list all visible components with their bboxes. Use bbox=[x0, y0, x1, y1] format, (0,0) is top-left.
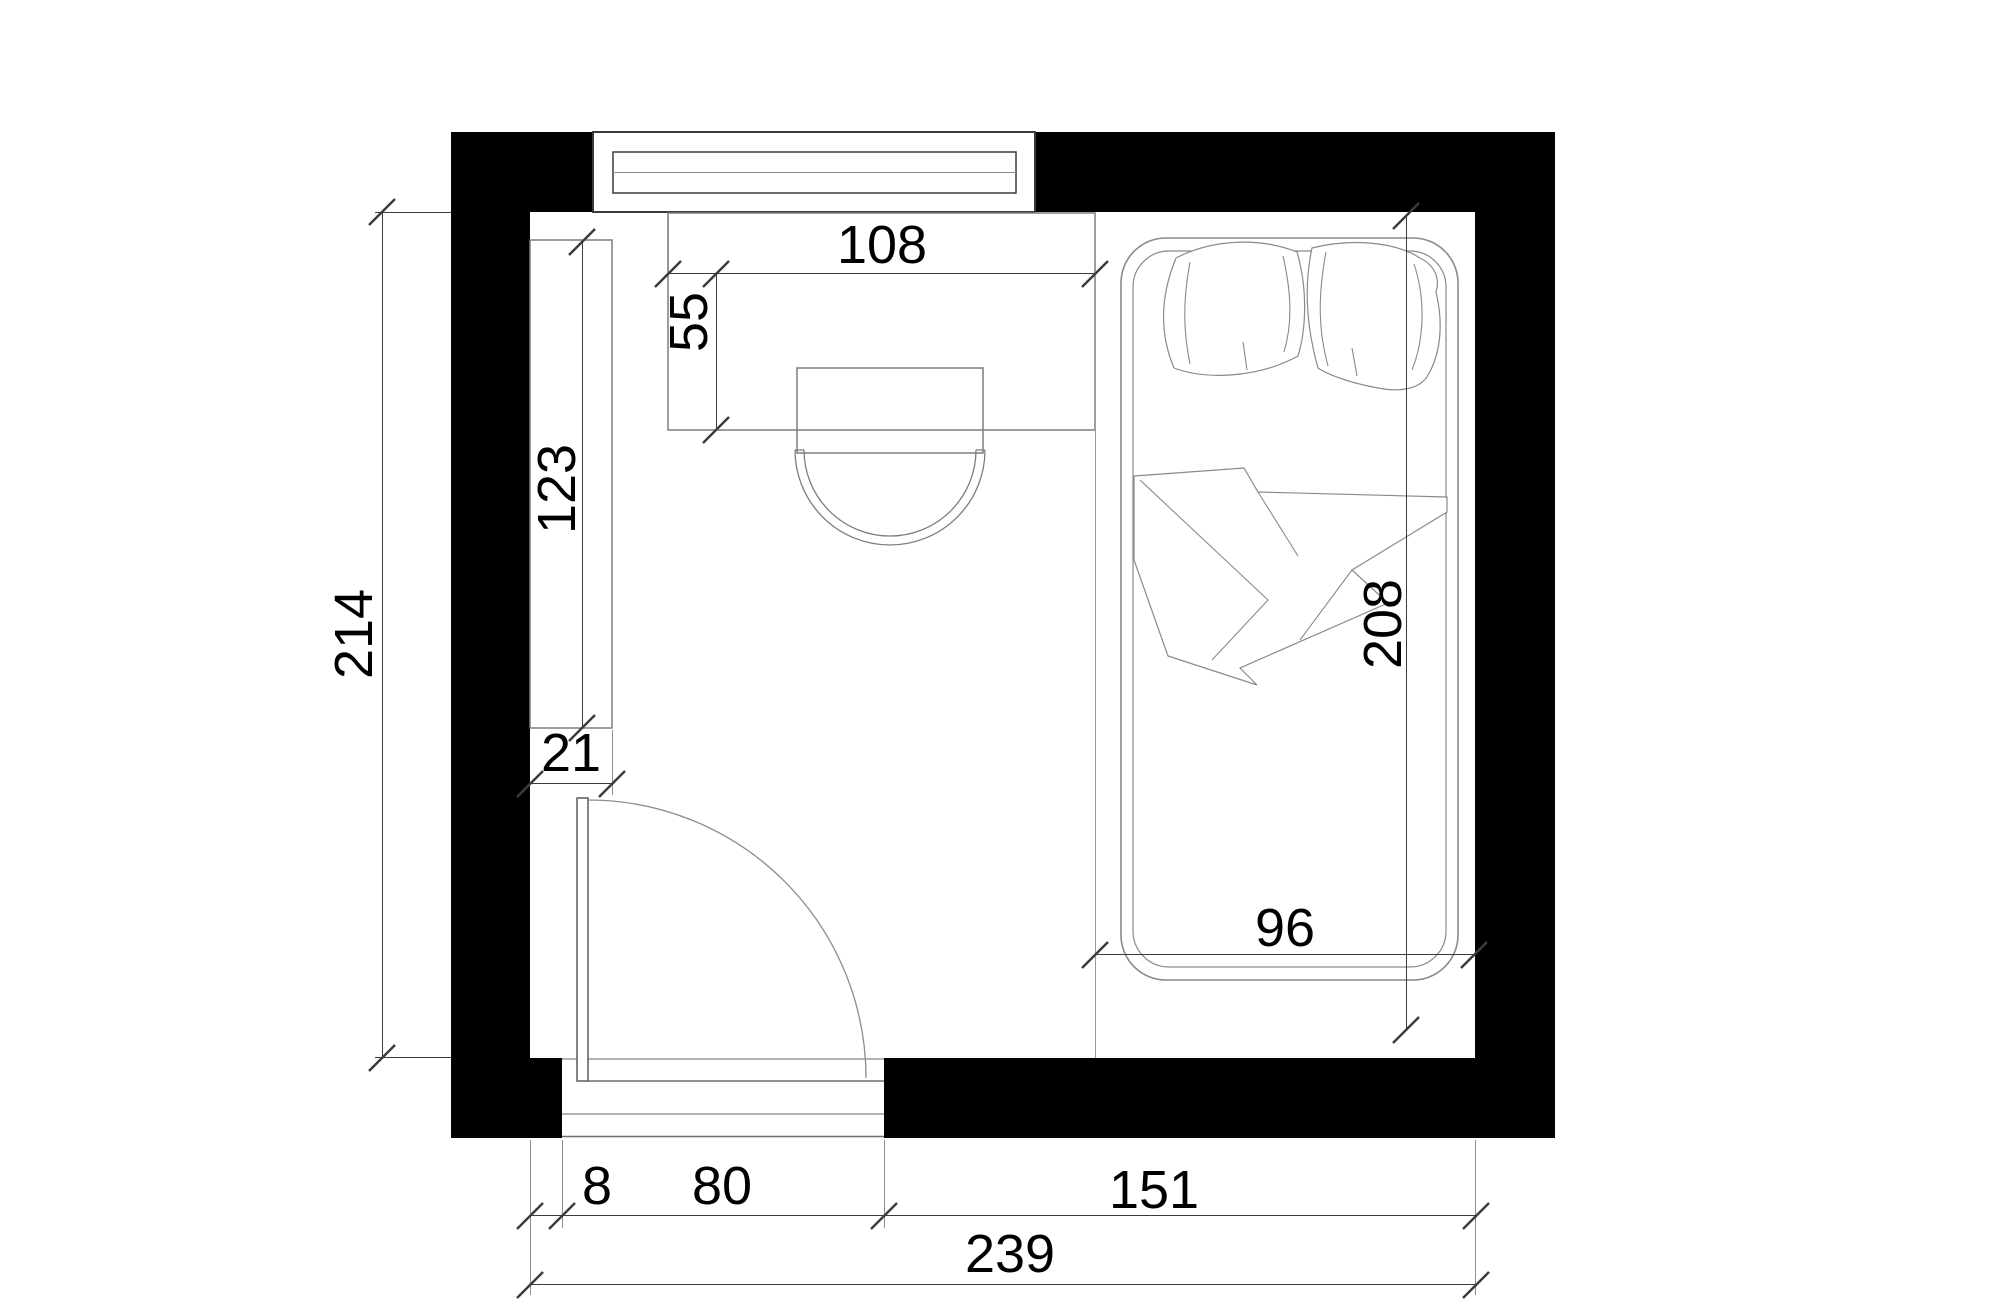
door-swing-arc bbox=[588, 800, 866, 1078]
dim-label-door-width: 80 bbox=[692, 1159, 752, 1213]
dim-label-right-segment: 151 bbox=[1109, 1163, 1199, 1217]
pillow-right bbox=[1307, 243, 1440, 390]
right-wall bbox=[1475, 212, 1555, 1058]
dim-label-shelf-depth: 21 bbox=[541, 726, 601, 780]
top-wall-left-segment bbox=[451, 132, 593, 212]
dim-label-bed-length: 208 bbox=[1356, 579, 1410, 669]
dim-label-door-offset: 8 bbox=[582, 1159, 612, 1213]
top-wall-right-segment bbox=[1035, 132, 1555, 212]
floor-plan-canvas: 214 123 21 108 55 208 96 8 80 151 239 bbox=[0, 0, 2000, 1300]
chair-seat-arc bbox=[795, 450, 985, 545]
dim-label-shelf-length: 123 bbox=[530, 444, 584, 534]
door-leaf bbox=[577, 798, 588, 1081]
dim-label-room-height: 214 bbox=[327, 589, 381, 679]
dim-label-desk-width: 108 bbox=[837, 218, 927, 272]
bottom-wall-left-segment bbox=[451, 1058, 562, 1138]
bottom-wall-right-segment bbox=[884, 1058, 1555, 1138]
window bbox=[593, 132, 1035, 212]
dim-label-desk-depth: 55 bbox=[662, 292, 716, 352]
left-wall bbox=[451, 212, 530, 1058]
door-threshold bbox=[562, 1059, 884, 1137]
floor-plan-drawing bbox=[0, 0, 2000, 1300]
chair-backrest bbox=[797, 368, 983, 453]
dim-label-room-width: 239 bbox=[965, 1227, 1055, 1281]
dim-label-bed-width: 96 bbox=[1255, 901, 1315, 955]
